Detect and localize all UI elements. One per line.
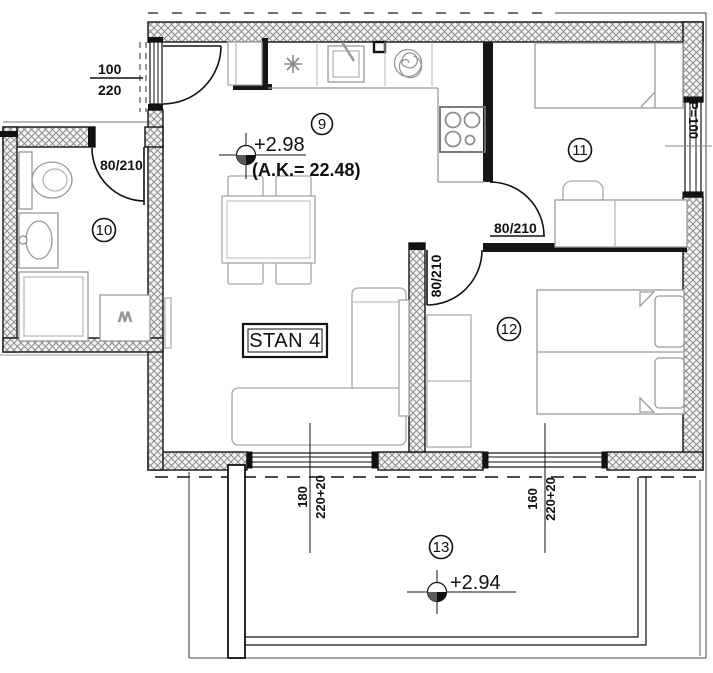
terrace-window-right-height: 220+20 (543, 477, 558, 521)
pillow (655, 296, 684, 347)
wall-bottom-right (607, 452, 703, 470)
wall-bath-left (3, 127, 17, 352)
terrace-window-right-width: 160 (525, 488, 540, 510)
elevation-terrace: +2.94 (450, 572, 501, 594)
wall-bath-top-right (145, 127, 163, 147)
plan-title-box: STAN 4 (243, 324, 327, 357)
entrance-dim-width: 100 (98, 61, 122, 77)
kitchen-sink (328, 42, 364, 82)
bathroom-fixtures: W (19, 152, 150, 341)
tv-board (399, 300, 409, 416)
washbasin (19, 213, 58, 268)
wall-bottom-middle (378, 452, 483, 470)
room-number-12: 12 (501, 321, 518, 338)
double-bed (537, 290, 684, 414)
wall-top (148, 22, 703, 42)
sofa-chaise (352, 288, 406, 392)
area-note-living: (A.K.= 22.48) (252, 160, 361, 180)
level-symbol-terrace (428, 583, 447, 602)
sofa-seat (232, 388, 406, 445)
entry-closet (228, 42, 262, 85)
sofa (232, 288, 406, 445)
toilet (19, 152, 72, 209)
terrace (228, 465, 646, 658)
wall-living-bedroom2 (409, 243, 425, 452)
terrace-window-left-height: 220+20 (313, 475, 328, 519)
room-number-11: 11 (572, 142, 588, 159)
oven-spiral-icon (395, 50, 422, 78)
chair (276, 263, 311, 284)
bedroom1-door-dim: 80/210 (494, 220, 537, 236)
bathroom-door-dim: 80/210 (100, 157, 143, 173)
plan-title: STAN 4 (249, 330, 321, 352)
terrace-pillar (228, 465, 245, 658)
kitchen-duct-box (374, 42, 385, 52)
pillow (655, 358, 684, 408)
dining-table-inner (227, 201, 310, 258)
asterisk-icon (284, 55, 302, 73)
bedroom2-furniture (427, 290, 684, 447)
floor-plan-canvas: W (0, 0, 713, 673)
parapet-window-dim: P=100 (686, 101, 701, 139)
living-room-furniture (165, 176, 409, 445)
cooktop (440, 107, 485, 152)
radiator (165, 298, 171, 348)
wall-right-upper (683, 22, 703, 102)
partition-entry-closet (262, 38, 268, 88)
room-number-13: 13 (433, 539, 450, 556)
washing-machine-label: W (118, 309, 132, 325)
room-number-10: 10 (96, 222, 113, 239)
chair (228, 263, 263, 284)
terrace-window-left (247, 452, 377, 468)
floor-plan-page: W (0, 0, 713, 673)
entrance-dim-height: 220 (98, 82, 122, 98)
entrance-door (163, 46, 221, 104)
dining-set (222, 176, 315, 284)
bathroom-door (92, 147, 144, 205)
entrance-door-frame (150, 42, 162, 104)
desk (555, 200, 687, 247)
elevation-living: +2.98 (254, 134, 305, 156)
room-number-9: 9 (318, 116, 326, 133)
bedroom2-door-dim: 80/210 (428, 254, 444, 297)
bedroom1-furniture (535, 43, 687, 247)
wall-west (148, 110, 163, 470)
terrace-window-left-width: 180 (295, 486, 310, 508)
shower (19, 272, 88, 341)
washing-machine: W (100, 295, 150, 341)
single-bed (535, 43, 683, 108)
